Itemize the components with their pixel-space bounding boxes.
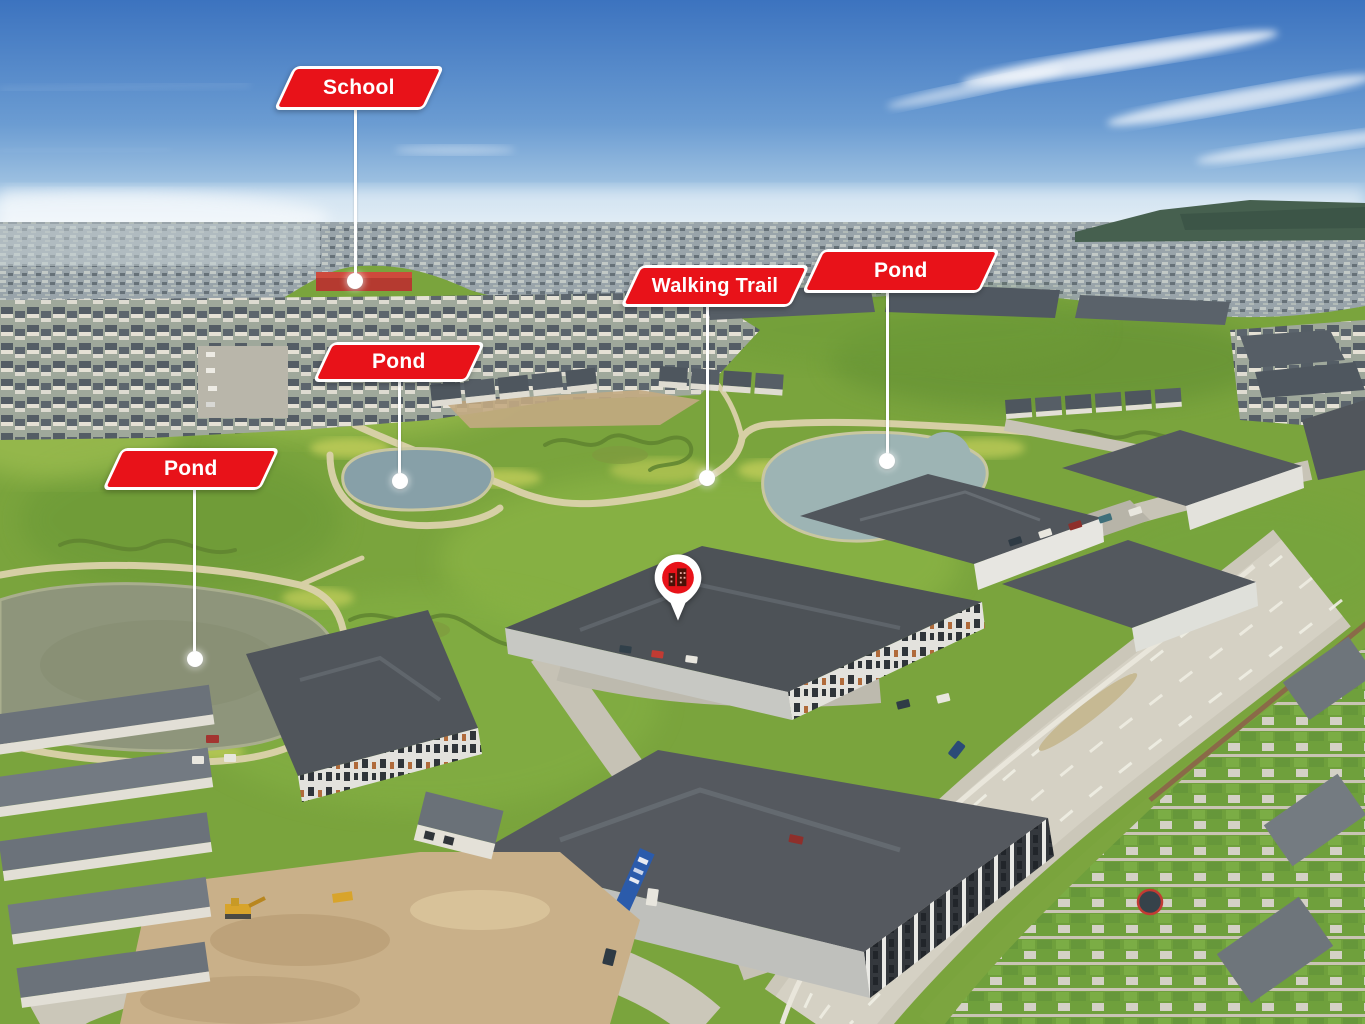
leader-line <box>354 110 357 278</box>
school-building <box>316 272 412 291</box>
location-pin <box>650 552 706 628</box>
callout-label: School <box>274 66 445 110</box>
leader-line <box>886 293 889 453</box>
aerial-photo: School Walking Trail Pond Pond Pond <box>0 0 1365 1024</box>
callout-text: Walking Trail <box>652 275 779 298</box>
leader-line <box>706 307 709 470</box>
leader-dot <box>347 273 363 289</box>
callout-label: Pond <box>802 249 1001 293</box>
pond-middle-water <box>343 449 493 510</box>
location-pin-icon <box>650 552 706 624</box>
callout-text: Pond <box>164 457 218 481</box>
leader-line <box>398 382 401 473</box>
callout-text: Pond <box>372 350 426 374</box>
leader-dot <box>187 651 203 667</box>
callout-label: Pond <box>102 448 280 490</box>
callout-label: Pond <box>313 342 486 382</box>
leader-dot <box>879 453 895 469</box>
callout-text: School <box>323 76 395 100</box>
trampoline <box>1138 890 1162 914</box>
callout-text: Pond <box>874 259 928 283</box>
aerial-scene <box>0 0 1365 1024</box>
leader-dot <box>699 470 715 486</box>
leader-line <box>193 490 196 651</box>
callout-label: Walking Trail <box>620 265 810 307</box>
leader-dot <box>392 473 408 489</box>
